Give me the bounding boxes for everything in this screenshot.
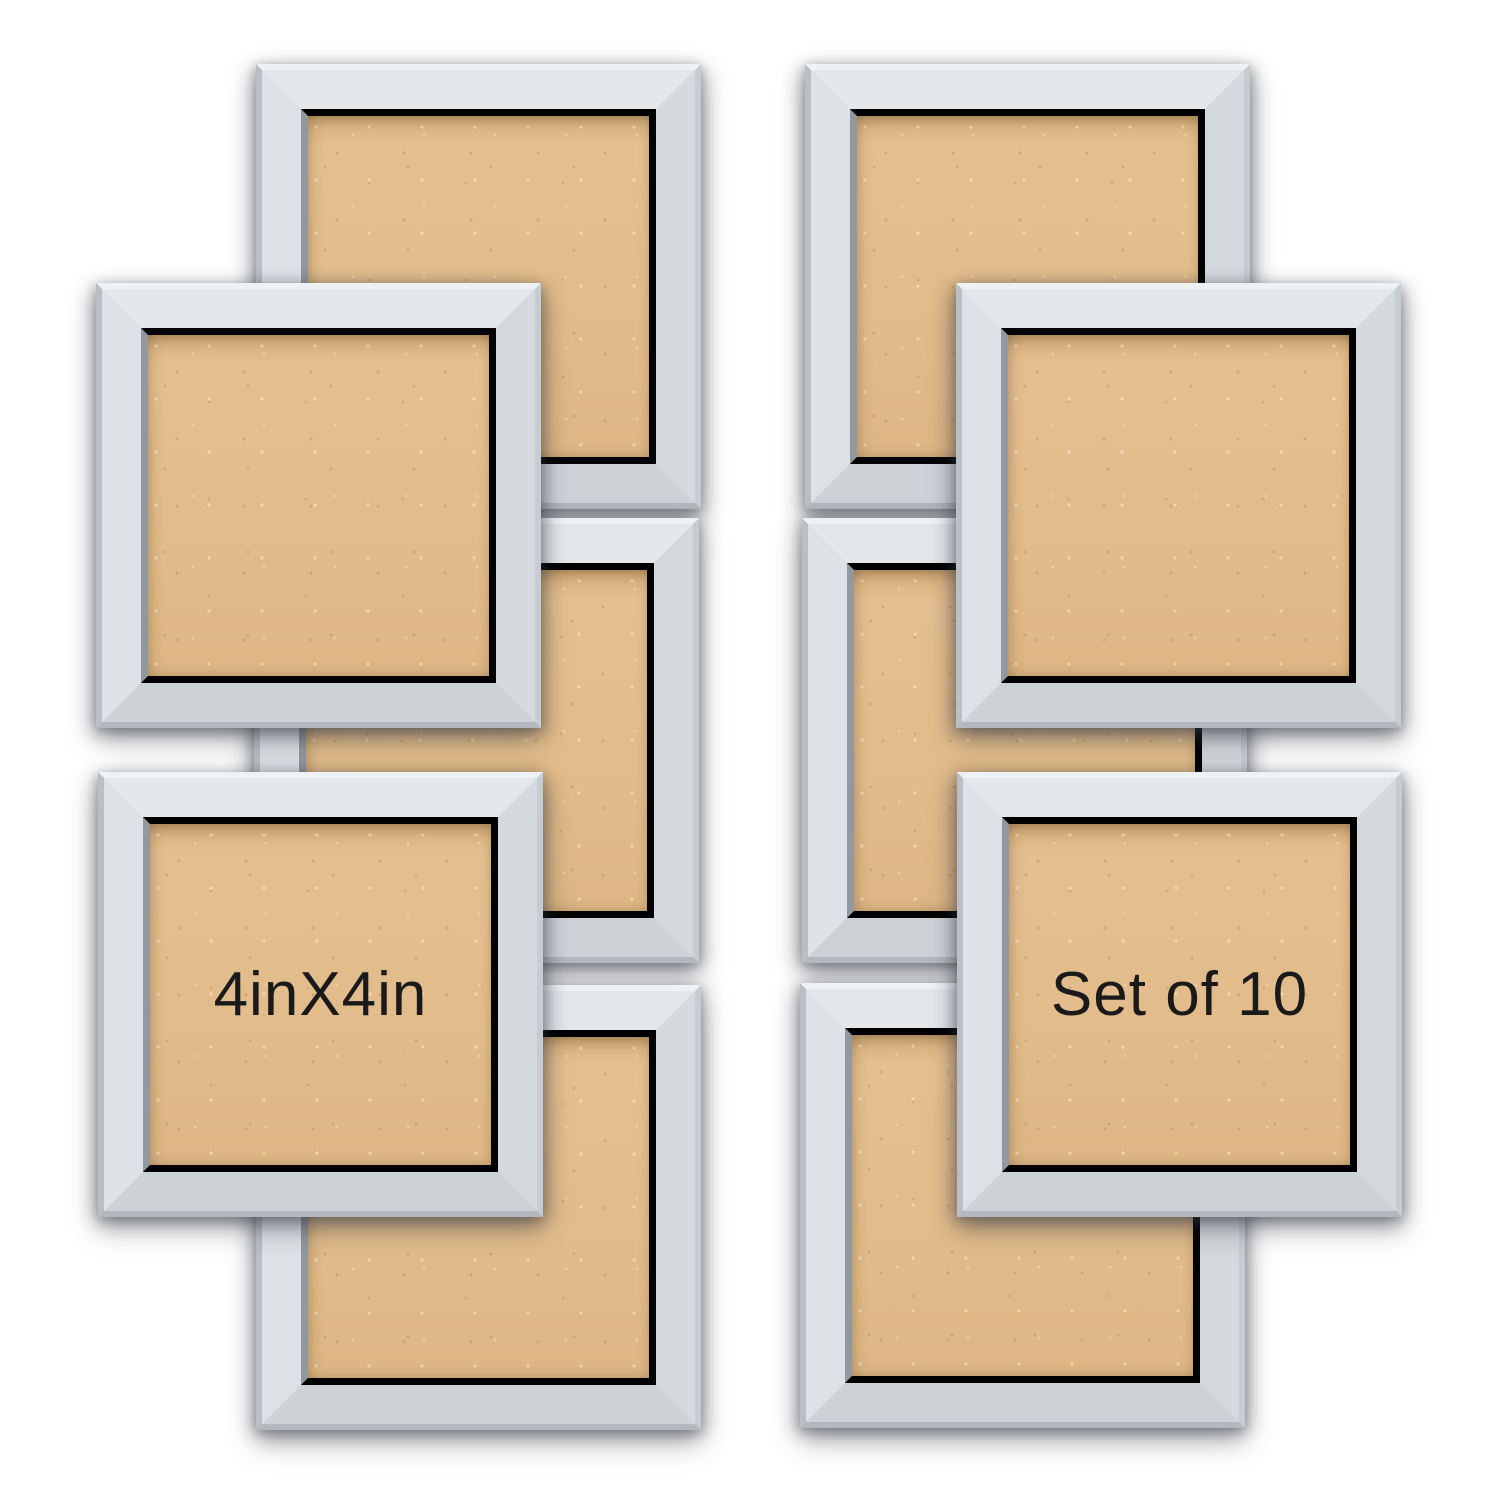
frame-inner-lip xyxy=(1001,328,1356,683)
frame-backing-board xyxy=(1008,335,1349,676)
frame-lower-left-front: 4inX4in xyxy=(98,772,543,1217)
frame-inner-lip: 4inX4in xyxy=(143,817,498,1172)
frame-inner-lip: Set of 10 xyxy=(1002,817,1357,1172)
product-image-stage: 4inX4in xyxy=(0,0,1500,1500)
frame-upper-left-front xyxy=(96,283,541,728)
frame-upper-right-front xyxy=(956,283,1401,728)
frame-lower-right-front: Set of 10 xyxy=(957,772,1402,1217)
frame-outer-edge xyxy=(96,283,541,728)
size-label: 4inX4in xyxy=(214,964,428,1026)
frame-face xyxy=(962,289,1395,722)
frame-backing-board: Set of 10 xyxy=(1009,824,1350,1165)
frame-face: Set of 10 xyxy=(963,778,1396,1211)
frame-outer-edge: Set of 10 xyxy=(957,772,1402,1217)
frame-outer-edge: 4inX4in xyxy=(98,772,543,1217)
frame-inner-lip xyxy=(141,328,496,683)
set-count-label: Set of 10 xyxy=(1051,964,1308,1026)
frame-face: 4inX4in xyxy=(104,778,537,1211)
frame-backing-board: 4inX4in xyxy=(150,824,491,1165)
frame-face xyxy=(102,289,535,722)
frame-outer-edge xyxy=(956,283,1401,728)
frame-backing-board xyxy=(148,335,489,676)
